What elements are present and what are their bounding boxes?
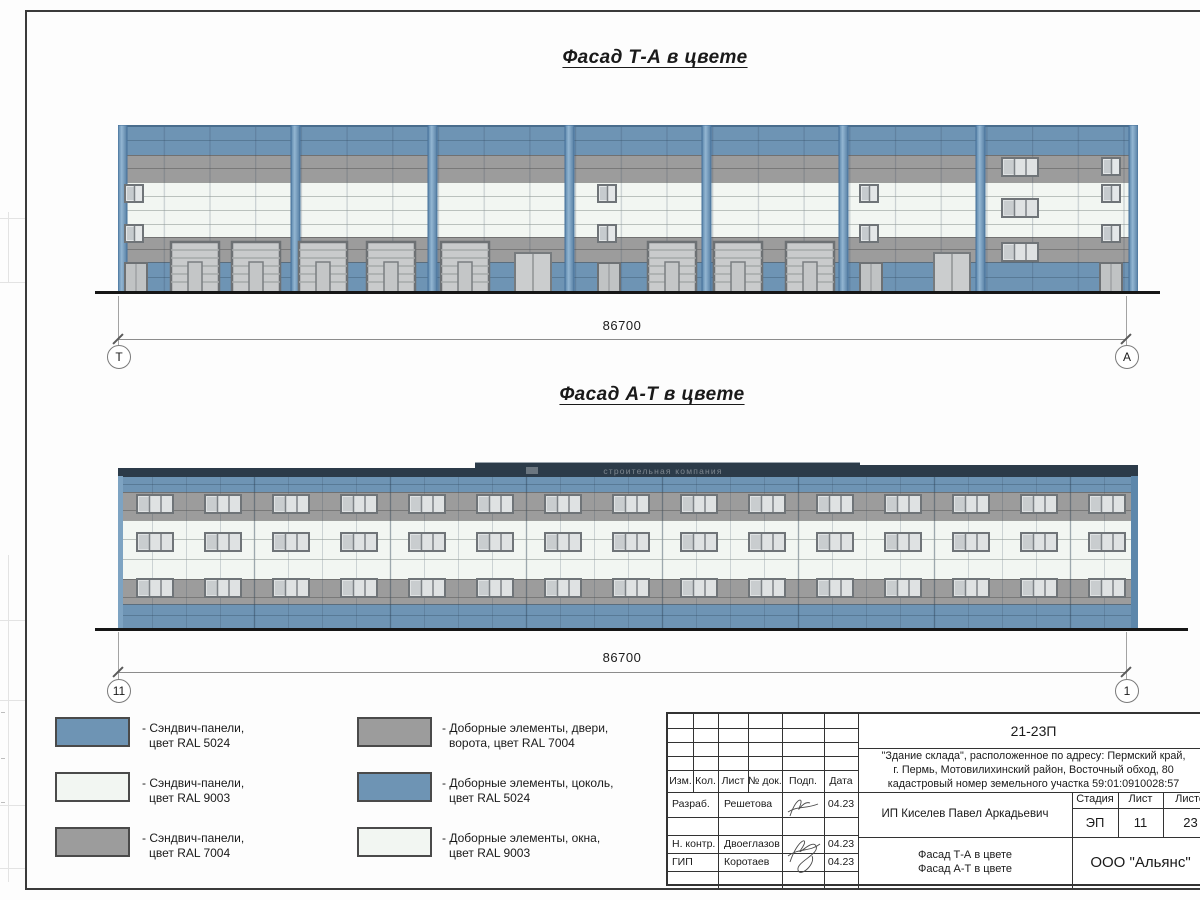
axis-bubble-a: А (1115, 345, 1139, 369)
margin-line (0, 700, 25, 701)
legend-label: - Сэндвич-панели,цвет RAL 7004 (142, 831, 244, 861)
dimension-value: 86700 (603, 318, 642, 333)
legend-label: - Доборные элементы, цоколь,цвет RAL 502… (442, 776, 613, 806)
legend-swatch-ral9003 (55, 772, 130, 802)
stage-label: Стадия (1072, 792, 1118, 808)
row-date: 04.23 (824, 853, 858, 871)
dimension-value: 86700 (603, 650, 642, 665)
row-role: Н. контр. (668, 835, 718, 853)
facade-at-drawing: строительная компания (118, 462, 1138, 630)
facade-at-title: Фасад А-Т в цвете (559, 384, 744, 406)
dimension-line (118, 672, 1126, 673)
project-description: "Здание склада", расположенное по адресу… (860, 748, 1200, 792)
organization-name: ООО "Альянс" (1072, 837, 1200, 888)
row-role: ГИП (668, 853, 718, 871)
col-data: Дата (824, 770, 858, 792)
svg-text:строительная компания: строительная компания (603, 466, 722, 476)
margin-line (8, 555, 9, 882)
sheets-label: Листов (1163, 792, 1200, 808)
col-izm: Изм. (668, 770, 693, 792)
client-name: ИП Киселев Павел Аркадьевич (858, 792, 1072, 837)
margin-mark (1, 802, 5, 803)
window-rows (137, 495, 1125, 597)
signature (782, 792, 824, 888)
facade-ta-drawing (118, 125, 1138, 293)
dimension-line (118, 339, 1126, 340)
col-ndok: № док. (748, 770, 782, 792)
legend-swatch-plinth-ral5024 (357, 772, 432, 802)
legend-label: - Доборные элементы, окна,цвет RAL 9003 (442, 831, 600, 861)
margin-mark (1, 758, 5, 759)
col-list: Лист (718, 770, 748, 792)
margin-line (0, 868, 25, 869)
row-name: Решетова (720, 792, 782, 817)
sheet-title: Фасад Т-А в цвете Фасад А-Т в цвете (858, 837, 1072, 888)
stage-value: ЭП (1072, 808, 1118, 837)
row-date: 04.23 (824, 792, 858, 817)
row-name: Двоеглазов (720, 835, 782, 853)
doc-number: 21-23П (858, 714, 1200, 748)
margin-line (0, 282, 25, 283)
sheets-value: 23 (1163, 808, 1200, 837)
axis-bubble-11: 11 (107, 679, 131, 703)
facade-ta-title: Фасад Т-А в цвете (562, 47, 747, 69)
margin-line (0, 805, 25, 806)
row-role: Разраб. (668, 792, 718, 817)
row-name: Коротаев (720, 853, 782, 871)
legend-swatch-ral7004 (55, 827, 130, 857)
ground-line (95, 291, 1160, 294)
legend-label: - Доборные элементы, двери,ворота, цвет … (442, 721, 608, 751)
sheet-value: 11 (1118, 808, 1163, 837)
sheet-label: Лист (1118, 792, 1163, 808)
axis-bubble-1: 1 (1115, 679, 1139, 703)
row-date: 04.23 (824, 835, 858, 853)
margin-line (8, 212, 9, 282)
col-podp: Подп. (782, 770, 824, 792)
col-kol: Кол. (693, 770, 718, 792)
title-block: Изм. Кол. Лист № док. Подп. Дата Разраб.… (666, 712, 1200, 886)
legend-label: - Сэндвич-панели,цвет RAL 5024 (142, 721, 244, 751)
margin-line (0, 218, 25, 219)
margin-mark (1, 712, 5, 713)
margin-line (0, 620, 25, 621)
legend-label: - Сэндвич-панели,цвет RAL 9003 (142, 776, 244, 806)
axis-bubble-t: Т (107, 345, 131, 369)
ground-line (95, 628, 1188, 631)
legend-swatch-windows-ral9003 (357, 827, 432, 857)
legend-swatch-doors-ral7004 (357, 717, 432, 747)
legend-swatch-ral5024 (55, 717, 130, 747)
